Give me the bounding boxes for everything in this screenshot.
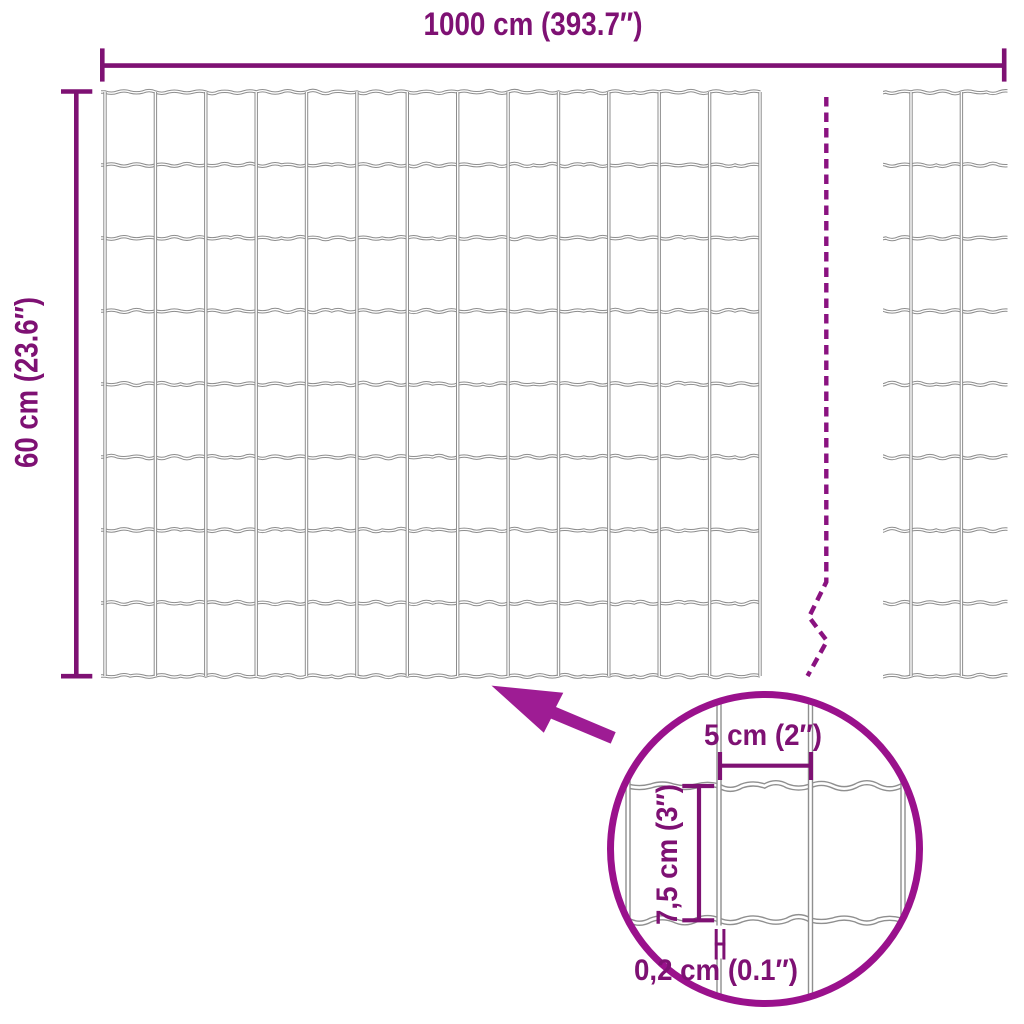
svg-text:0,2 cm (0.1″): 0,2 cm (0.1″) (634, 954, 798, 987)
svg-text:60 cm (23.6″): 60 cm (23.6″) (9, 297, 45, 468)
svg-text:5 cm (2″): 5 cm (2″) (704, 719, 822, 752)
svg-text:7,5 cm (3″): 7,5 cm (3″) (651, 784, 684, 925)
svg-text:1000 cm (393.7″): 1000 cm (393.7″) (424, 6, 643, 42)
